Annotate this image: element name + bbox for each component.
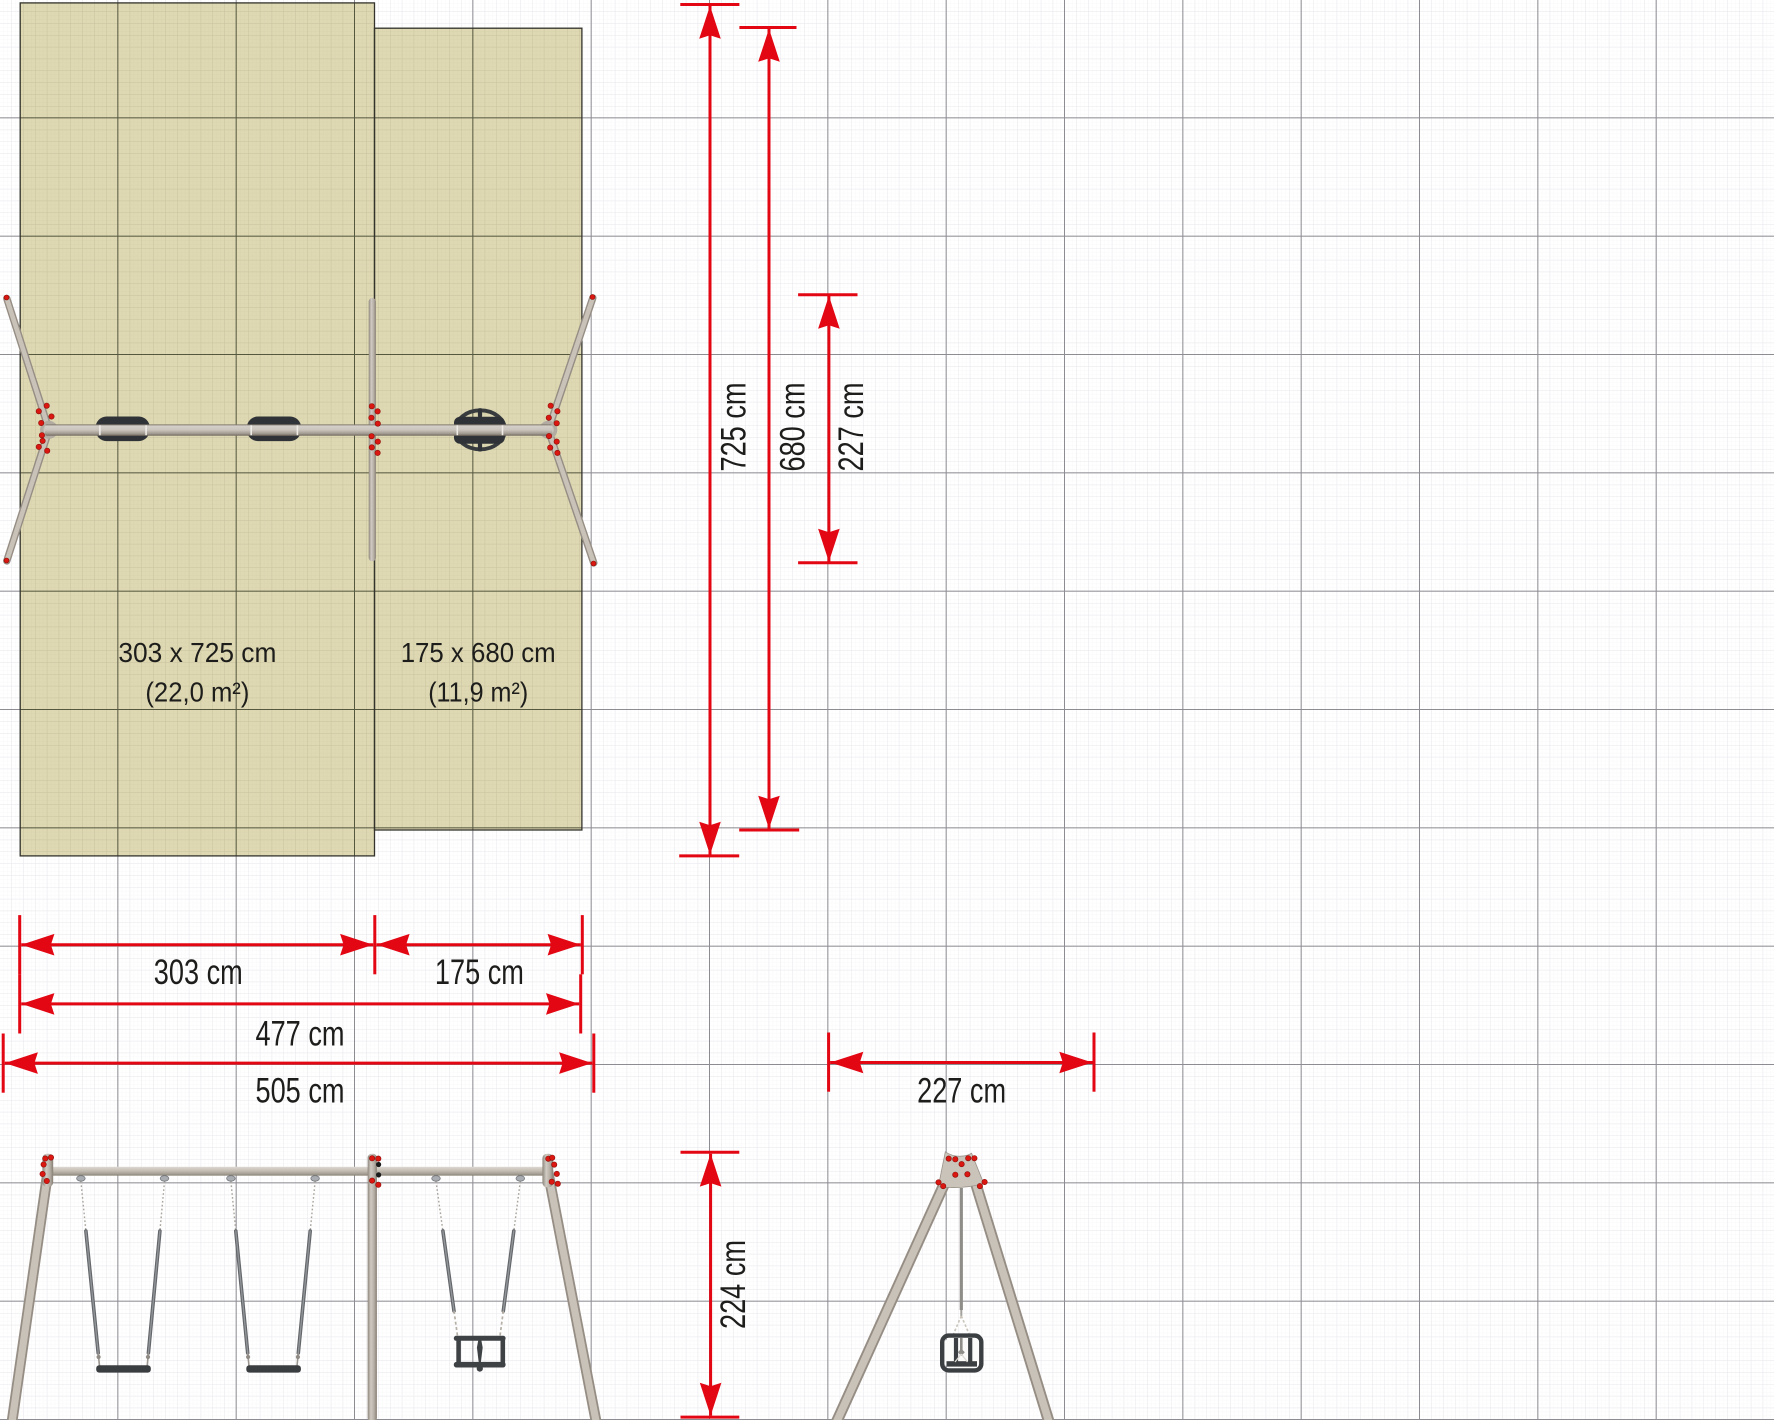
- svg-text:(22,0 m²): (22,0 m²): [145, 677, 249, 708]
- svg-text:175 x 680 cm: 175 x 680 cm: [401, 637, 556, 668]
- svg-text:(11,9 m²): (11,9 m²): [428, 677, 528, 708]
- svg-text:303 x 725 cm: 303 x 725 cm: [118, 637, 276, 668]
- svg-text:680 cm: 680 cm: [773, 383, 812, 472]
- svg-text:725 cm: 725 cm: [715, 383, 754, 472]
- svg-text:227 cm: 227 cm: [917, 1072, 1006, 1111]
- svg-text:303 cm: 303 cm: [154, 953, 243, 992]
- svg-text:505 cm: 505 cm: [256, 1072, 345, 1111]
- svg-text:227 cm: 227 cm: [832, 383, 871, 472]
- svg-text:477 cm: 477 cm: [256, 1014, 345, 1053]
- svg-text:175 cm: 175 cm: [435, 953, 524, 992]
- svg-text:224 cm: 224 cm: [714, 1240, 753, 1329]
